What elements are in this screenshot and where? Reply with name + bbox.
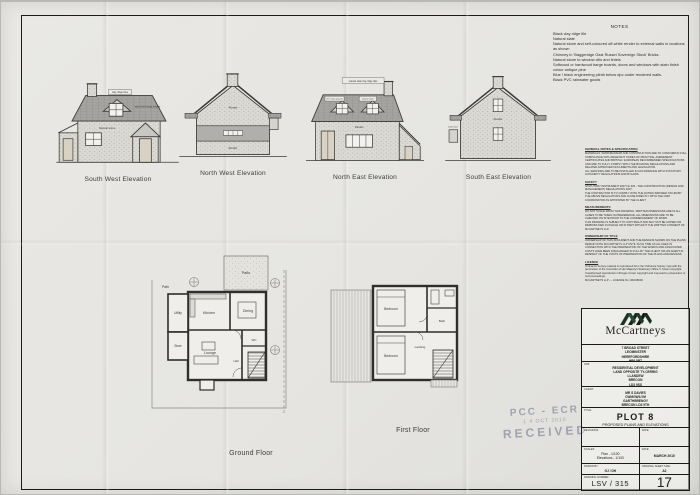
- north-west-elevation-drawing: Render Render: [173, 72, 293, 168]
- north-east-elevation-drawing: natural slate clay ridge tiles 2m² solar…: [301, 72, 429, 172]
- title-block-logo-row: McCartneys: [582, 309, 689, 345]
- title-label: TITLE:: [584, 409, 592, 412]
- title-block-address: 7 BROAD STREET LEOMINSTER HEREFORDSHIRE …: [582, 345, 689, 362]
- annotation-ridge: clay ridge tiles: [112, 91, 129, 94]
- client-label: CLIENT:: [584, 388, 594, 391]
- elevation-south-east: meter box Render South East Elevation: [441, 76, 556, 181]
- title-block-scales: SCALES: Plan - 1/100 Elevations - 1/100 …: [582, 447, 689, 464]
- elevation-south-west: clay ridge tiles stain finish barge boar…: [53, 76, 183, 183]
- spec-body: DO NOT SCALE FROM THIS DRAWING. WRITTEN …: [585, 210, 687, 231]
- first-floor-plan-drawing: Bedroom Bedroom Bath Landing: [327, 262, 477, 432]
- room-label-store: Store: [174, 344, 182, 348]
- room-label-path: Path: [162, 285, 169, 289]
- notes-title: NOTES: [553, 24, 686, 29]
- spec-heading: MEASUREMENTS: [585, 205, 687, 209]
- room-label-hall: Hall: [233, 359, 239, 363]
- title-block-job: JOB: RESIDENTIAL DEVELOPMENT LAND OPPOSI…: [582, 362, 689, 387]
- spec-body: OWNERSHIP OF THIS DOCUMENT AND THE DESIG…: [585, 239, 687, 257]
- elevation-north-west: Render Render North West Elevation: [173, 72, 293, 177]
- note-line: Natural stone and self-coloured off-whit…: [553, 41, 686, 51]
- annotation-render: Render: [355, 125, 364, 129]
- drawing-number-label: DRAWING NUMBER:: [584, 476, 609, 479]
- scales-label: SCALES:: [584, 448, 595, 451]
- annotation-ridge: natural slate clay ridge tiles: [349, 80, 378, 83]
- room-label-bedroom: Bedroom: [384, 307, 398, 311]
- drawing-title: PLOT 8: [582, 412, 689, 422]
- annotation-solar: 2m² solar panels: [326, 98, 343, 101]
- room-label-kitchen: Kitchen: [203, 311, 215, 315]
- annotation-barge: stain finish barge boards: [135, 105, 161, 108]
- spec-body: Ordnance Survey material is reproduced f…: [585, 265, 687, 283]
- elevation-label: North West Elevation: [173, 170, 293, 177]
- spec-heading: GENERAL NOTES & SPECIFICATION: [585, 147, 687, 151]
- room-label-bath: Bath: [439, 319, 446, 323]
- scale-elevations: Elevations - 1/100: [582, 456, 639, 461]
- room-label-lounge: Lounge: [204, 351, 216, 355]
- annotation-meter: meter box: [448, 125, 459, 128]
- annotation-slate: natural slate: [362, 98, 375, 101]
- title-block-number: DRAWING NUMBER: LSV / 315 17: [582, 475, 689, 490]
- south-east-elevation-drawing: meter box Render: [441, 76, 556, 172]
- title-block-revisions: REVISIONS: DATE:: [582, 428, 689, 446]
- spec-body: MATERIALS, WORKMANSHIP AND CONSTRUCTION …: [585, 152, 687, 177]
- job-label: JOB:: [584, 363, 590, 366]
- sheet-number: 17: [640, 475, 689, 490]
- revisions-label: REVISIONS:: [584, 429, 599, 432]
- elevation-label: South West Elevation: [53, 176, 183, 183]
- room-label-utility: Utility: [174, 311, 182, 315]
- room-label-bedroom: Bedroom: [384, 354, 398, 358]
- drawing-subtitle: PROPOSED PLANS AND ELEVATIONS: [582, 423, 689, 427]
- sheet-size-label: ORIGINAL SHEET SIZE:: [642, 465, 671, 468]
- spec-heading: LICENCE: [585, 260, 687, 264]
- spec-body: STATUTORY INSTRUMENT 2007 No 320 - THE C…: [585, 185, 687, 203]
- elevation-label: North East Elevation: [301, 174, 429, 181]
- brand-name: McCartneys: [582, 325, 689, 337]
- title-block-drawn: DRAWN BY: GJ / DH ORIGINAL SHEET SIZE: A…: [582, 464, 689, 475]
- title-block-title: TITLE: PLOT 8 PROPOSED PLANS AND ELEVATI…: [582, 408, 689, 429]
- room-label-patio: Patio: [242, 271, 250, 275]
- note-line: Softwood or hardwood barge boards, doors…: [553, 62, 686, 72]
- notes-panel: NOTES Black clay ridge tile Natural slat…: [553, 24, 686, 83]
- south-west-elevation-drawing: clay ridge tiles stain finish barge boar…: [53, 76, 183, 174]
- note-line: Black PVC rainwater goods: [553, 77, 686, 82]
- room-label-landing: Landing: [415, 345, 426, 349]
- elevation-label: South East Elevation: [441, 174, 556, 181]
- room-label-dining: Dining: [243, 309, 253, 313]
- client-line: BRECON LD3 9TH: [582, 403, 689, 407]
- annotation-render: Render: [494, 117, 503, 121]
- spec-heading: SAFETY: [585, 180, 687, 184]
- date-label: DATE:: [642, 448, 649, 451]
- scanned-sheet: NOTES Black clay ridge tile Natural slat…: [1, 2, 699, 494]
- mccartneys-logo-icon: [619, 312, 653, 325]
- annotation-stone: Natural stone: [99, 126, 116, 130]
- room-label-wc: WC: [252, 338, 258, 342]
- elevation-north-east: natural slate clay ridge tiles 2m² solar…: [301, 72, 429, 181]
- revision-date-label: DATE:: [642, 429, 649, 432]
- spec-heading: OWNERSHIP OF TITLE: [585, 234, 687, 238]
- ground-floor-label: Ground Floor: [201, 450, 301, 457]
- first-floor-label: First Floor: [363, 427, 463, 434]
- annotation-render: Render: [229, 146, 238, 150]
- annotation-render: Render: [229, 105, 238, 109]
- drawn-by-label: DRAWN BY:: [584, 465, 598, 468]
- title-block: McCartneys 7 BROAD STREET LEOMINSTER HER…: [581, 308, 690, 491]
- specification-panel: GENERAL NOTES & SPECIFICATION MATERIALS,…: [585, 144, 687, 282]
- ground-floor-plan-drawing: Patio Path Utility Store Kitchen Dining …: [144, 250, 294, 440]
- title-block-client: CLIENT: MR S DAVIES CWMGWILYM GARTHBRENG…: [582, 387, 689, 408]
